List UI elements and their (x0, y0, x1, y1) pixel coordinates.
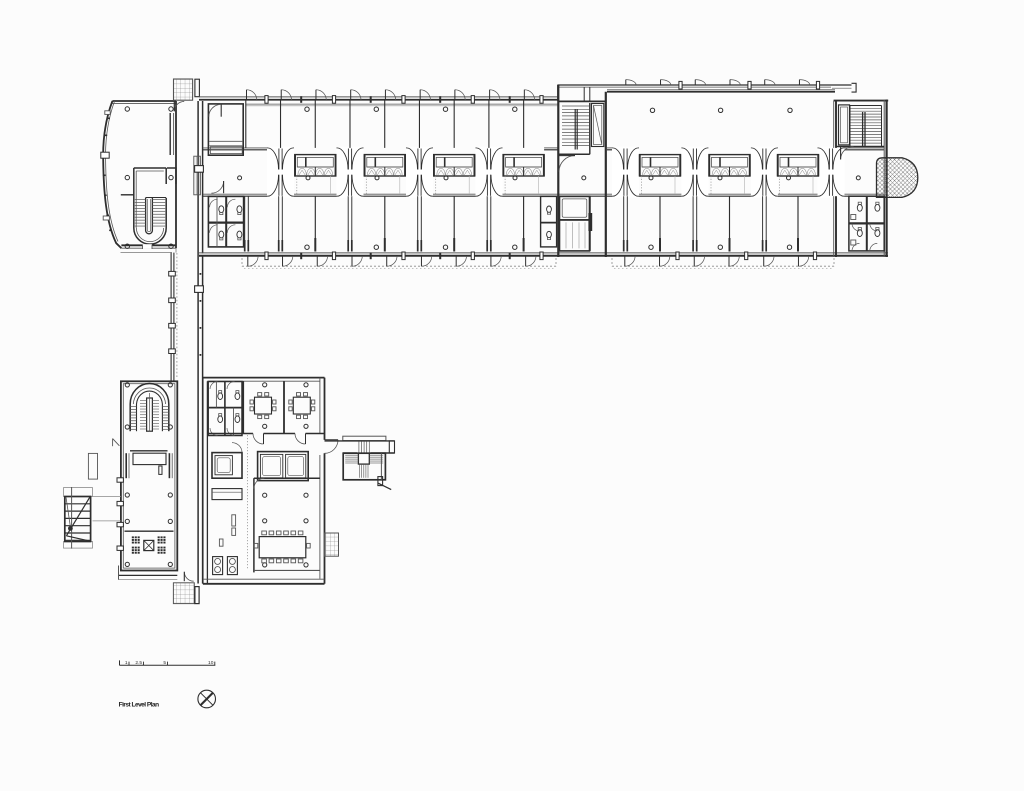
svg-text:First Level Plan: First Level Plan (119, 702, 160, 709)
svg-text:10: 10 (208, 660, 214, 666)
svg-text:1: 1 (125, 660, 128, 666)
svg-text:5: 5 (163, 660, 166, 666)
svg-text:2.5: 2.5 (135, 660, 142, 666)
